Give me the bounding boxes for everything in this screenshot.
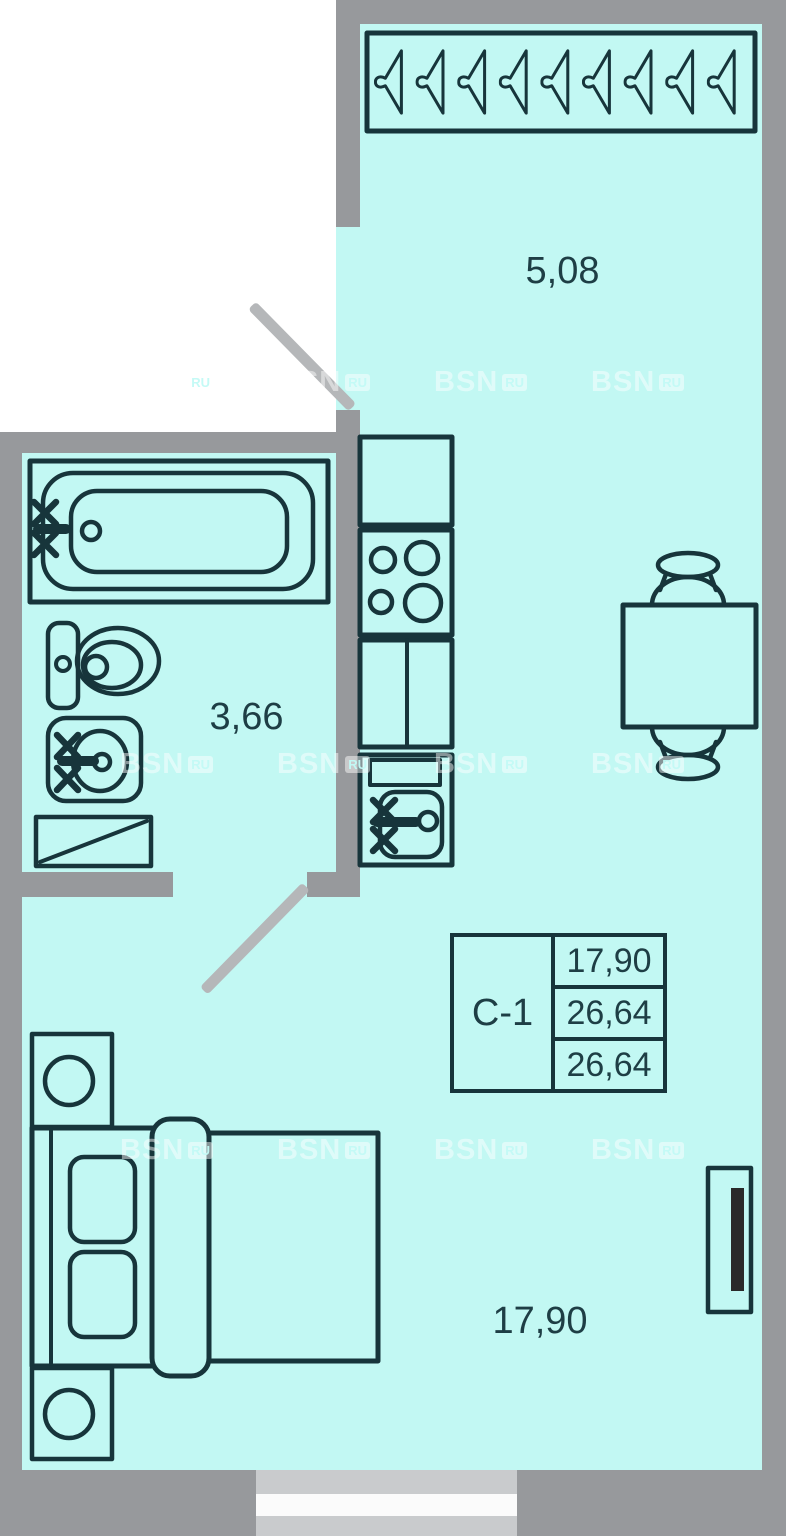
pillow bbox=[70, 1157, 135, 1242]
hanger-icon bbox=[375, 51, 401, 113]
hanger-icons bbox=[375, 51, 734, 113]
unit-total-area: 26,64 bbox=[555, 985, 663, 1037]
blanket-roll bbox=[152, 1119, 209, 1376]
stove bbox=[360, 530, 452, 635]
dining-table bbox=[623, 605, 756, 727]
hanger-icon bbox=[459, 51, 485, 113]
chair-bottom bbox=[652, 727, 724, 779]
unit-full-area: 26,64 bbox=[555, 1037, 663, 1089]
unit-living-area: 17,90 bbox=[555, 937, 663, 985]
chair-top bbox=[652, 553, 724, 605]
unit-values: 17,90 26,64 26,64 bbox=[555, 937, 663, 1089]
hanger-icon bbox=[708, 51, 734, 113]
bathroom-area-label: 3,66 bbox=[184, 696, 309, 739]
hanger-icon bbox=[417, 51, 443, 113]
wardrobe bbox=[367, 33, 755, 131]
bed bbox=[32, 1119, 378, 1376]
kitchen-cabinet bbox=[360, 640, 452, 747]
hanger-icon bbox=[583, 51, 609, 113]
nightstand-bottom bbox=[32, 1368, 112, 1459]
hanger-icon bbox=[667, 51, 693, 113]
washbasin bbox=[48, 718, 141, 801]
pillow bbox=[70, 1252, 135, 1337]
living-room-area-label: 17,90 bbox=[470, 1300, 610, 1343]
hanger-icon bbox=[500, 51, 526, 113]
floor-plan: 5,08 3,66 17,90 С-1 17,90 26,64 26,64 BS… bbox=[0, 0, 786, 1536]
nightstand-top bbox=[32, 1034, 112, 1127]
kitchen-sink bbox=[360, 755, 452, 865]
toilet bbox=[48, 623, 159, 708]
hall-area-label: 5,08 bbox=[500, 250, 625, 293]
washing-machine bbox=[36, 817, 151, 866]
radiator bbox=[708, 1168, 751, 1312]
hanger-icon bbox=[625, 51, 651, 113]
bathtub bbox=[30, 461, 328, 602]
unit-info-table: С-1 17,90 26,64 26,64 bbox=[450, 933, 667, 1093]
unit-label: С-1 bbox=[454, 937, 555, 1089]
hanger-icon bbox=[542, 51, 568, 113]
kitchen-counter bbox=[360, 437, 452, 525]
furniture-layer bbox=[0, 0, 786, 1536]
